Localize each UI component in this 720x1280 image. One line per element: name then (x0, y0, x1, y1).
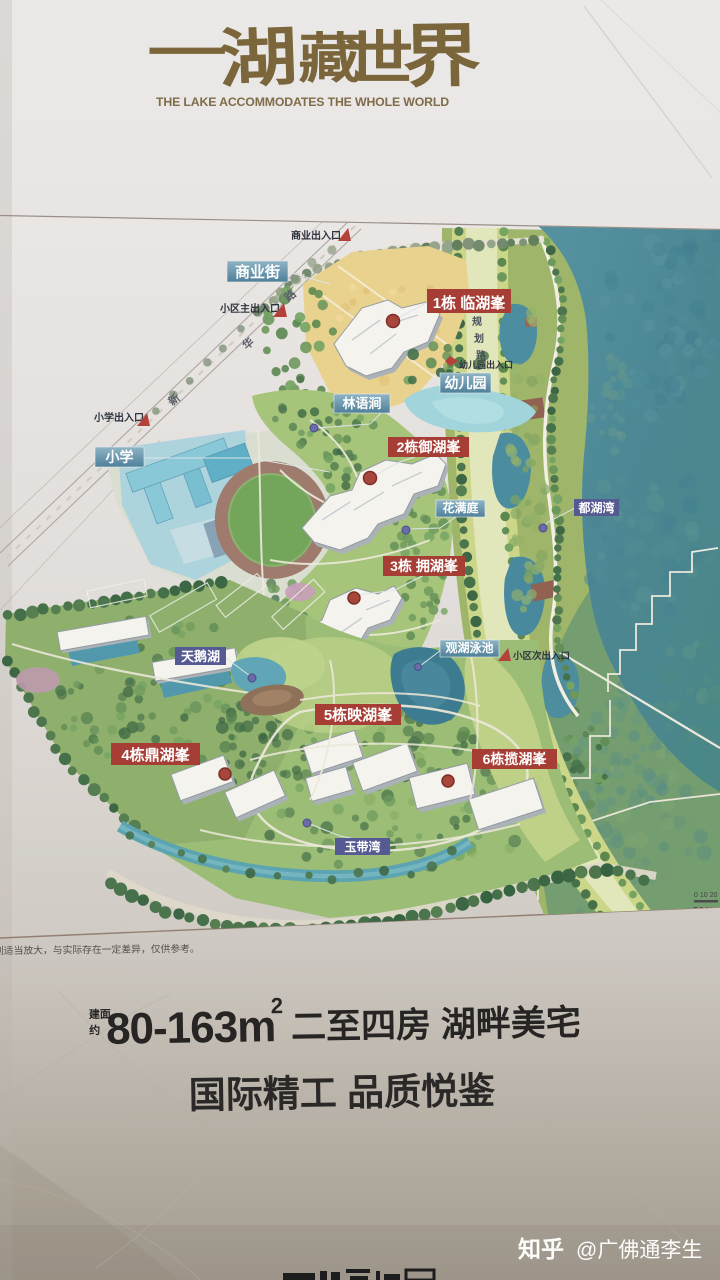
svg-text:4栋鼎湖峯: 4栋鼎湖峯 (121, 746, 190, 764)
svg-text:玉带湾: 玉带湾 (344, 839, 380, 854)
svg-text:一: 一 (147, 23, 227, 84)
svg-text:小学: 小学 (106, 449, 134, 465)
svg-text:规: 规 (472, 315, 482, 328)
svg-text:约: 约 (89, 1023, 100, 1037)
svg-text:THE LAKE ACCOMMODATES THE WHOL: THE LAKE ACCOMMODATES THE WHOLE WORLD (156, 95, 449, 109)
svg-text:小学出入口: 小学出入口 (93, 411, 144, 424)
svg-text:商业街: 商业街 (235, 263, 280, 281)
svg-text:商业出入口: 商业出入口 (291, 229, 341, 242)
svg-text:小区次出入口: 小区次出入口 (512, 650, 570, 662)
svg-text:观湖泳池: 观湖泳池 (445, 640, 493, 655)
svg-text:1栋 临湖峯: 1栋 临湖峯 (433, 294, 507, 312)
svg-text:2栋御湖峯: 2栋御湖峯 (397, 439, 462, 455)
svg-text:小区主出入口: 小区主出入口 (219, 302, 280, 315)
svg-text:界: 界 (402, 19, 481, 96)
svg-text:花满庭: 花满庭 (442, 500, 478, 515)
svg-text:幼儿园出入口: 幼儿园出入口 (459, 359, 513, 370)
svg-text:2: 2 (271, 993, 284, 1018)
svg-text:6栋揽湖峯: 6栋揽湖峯 (483, 751, 548, 767)
svg-text:80-163m: 80-163m (106, 1002, 276, 1054)
svg-text:幼儿园: 幼儿园 (445, 375, 487, 391)
svg-text:3栋 拥湖峯: 3栋 拥湖峯 (390, 558, 459, 574)
svg-text:国际精工 品质悦鉴: 国际精工 品质悦鉴 (189, 1070, 497, 1116)
svg-text:5栋映湖峯: 5栋映湖峯 (324, 706, 393, 724)
svg-text:林语涧: 林语涧 (342, 396, 381, 411)
svg-text:湖: 湖 (218, 22, 299, 96)
svg-text:天鹅湖: 天鹅湖 (181, 649, 220, 664)
svg-text:都湖湾: 都湖湾 (577, 500, 614, 515)
svg-text:划: 划 (474, 332, 484, 345)
svg-text:@广佛通李生: @广佛通李生 (576, 1239, 702, 1262)
svg-text:知乎: 知乎 (518, 1236, 564, 1262)
svg-text:路: 路 (476, 349, 487, 362)
svg-text:二至四房 湖畔美宅: 二至四房 湖畔美宅 (291, 1002, 581, 1047)
